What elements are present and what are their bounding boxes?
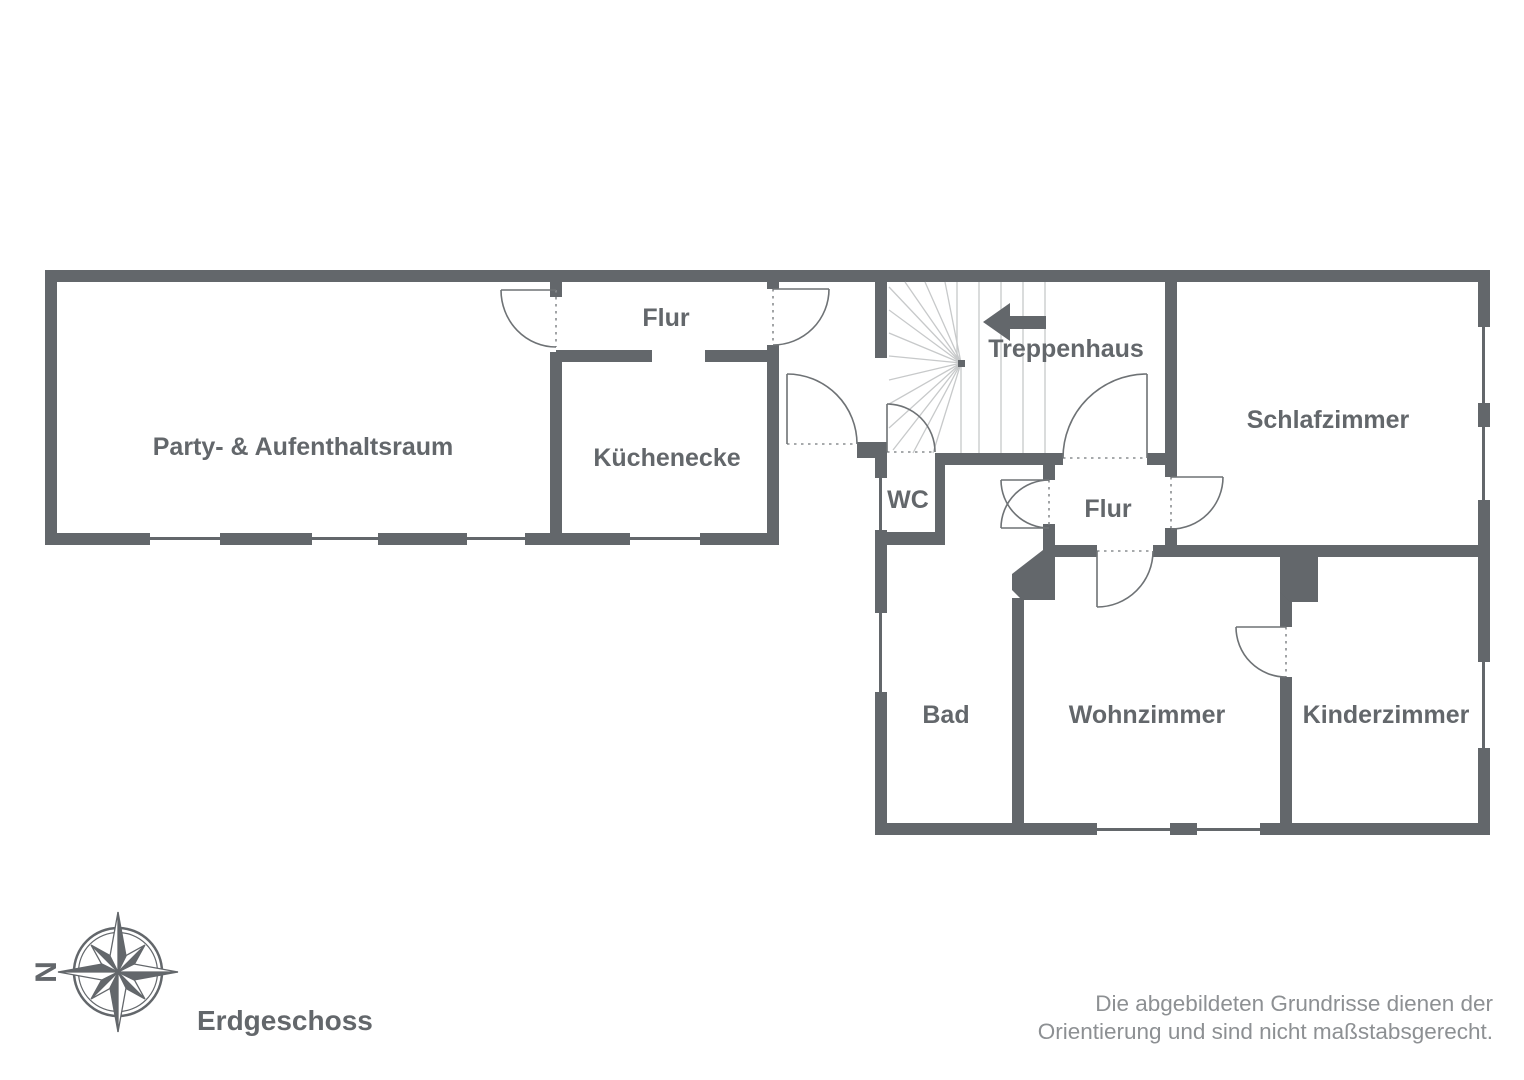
wall-segment (378, 533, 467, 545)
room-label-treppenhaus: Treppenhaus (988, 335, 1144, 363)
wall-segment (1043, 465, 1055, 480)
wall-segment (45, 270, 1490, 282)
wall-segment (875, 823, 1097, 835)
wall-segment (705, 350, 775, 362)
wall-segment (550, 352, 562, 533)
door-arc (1236, 627, 1286, 677)
wall-segment (1478, 403, 1490, 427)
window (1097, 828, 1170, 831)
door-arc (1097, 551, 1153, 607)
window (1482, 327, 1485, 403)
room-label-flur-top: Flur (642, 304, 689, 332)
door-arc (501, 290, 556, 347)
window (1482, 427, 1485, 500)
wall-segment (45, 270, 57, 545)
wall-segment (556, 350, 652, 362)
wall-segment (1165, 282, 1177, 477)
door-arc (787, 374, 857, 444)
floor-title: Erdgeschoss (197, 1005, 373, 1036)
door-arc (1171, 477, 1223, 529)
disclaimer-line-2: Orientierung und sind nicht maßstabsgere… (1038, 1019, 1493, 1044)
wall-segment (1260, 823, 1490, 835)
chimney-block (1280, 545, 1318, 602)
staircase (889, 282, 1045, 453)
room-label-flur-mitte: Flur (1084, 495, 1131, 523)
window (879, 613, 882, 692)
wall-segment (1147, 453, 1165, 465)
wall-segment (1012, 598, 1024, 823)
window (1482, 662, 1485, 748)
wall-segment (1478, 270, 1490, 327)
wall-segment (1478, 500, 1490, 662)
wall-segment (875, 692, 887, 835)
wall-segment (1165, 528, 1177, 545)
wall-segment (525, 533, 630, 545)
wall-segment (875, 282, 887, 358)
stair-winder-line (889, 356, 961, 363)
door-arc (1063, 374, 1147, 458)
stair-winder-line (889, 363, 961, 428)
floor-plan-page: Party- & Aufenthaltsraum Flur Küchenecke… (0, 0, 1524, 1080)
room-label-kinderzimmer: Kinderzimmer (1303, 701, 1470, 729)
wall-segment (857, 442, 883, 458)
wall-segment (1170, 823, 1197, 835)
window (467, 537, 525, 540)
window (150, 537, 220, 540)
wall-segment (767, 345, 779, 545)
room-label-wohnzimmer: Wohnzimmer (1069, 701, 1226, 729)
window (312, 537, 378, 540)
stair-newel-point (958, 360, 965, 367)
walls (45, 270, 1490, 835)
room-labels: Party- & Aufenthaltsraum Flur Küchenecke… (153, 304, 1470, 729)
compass-main-points (58, 912, 178, 1032)
wall-segment (220, 533, 312, 545)
room-label-kueche: Küchenecke (593, 444, 740, 472)
disclaimer: Die abgebildeten Grundrisse dienen der O… (1038, 991, 1494, 1044)
arrow-shaft (1008, 316, 1046, 329)
wall-segment (935, 453, 945, 535)
wall-segment (45, 533, 150, 545)
room-label-schlafzimmer: Schlafzimmer (1247, 406, 1410, 434)
wall-segment (875, 532, 945, 545)
wall-segment (1051, 545, 1097, 557)
compass-rose: N (30, 912, 178, 1032)
stair-winder-line (889, 287, 961, 363)
room-label-party: Party- & Aufenthaltsraum (153, 433, 454, 461)
disclaimer-line-1: Die abgebildeten Grundrisse dienen der (1095, 991, 1493, 1016)
window (879, 478, 882, 530)
window (630, 537, 700, 540)
compass-north-label: N (30, 961, 63, 983)
room-label-wc: WC (887, 486, 929, 514)
wall-segment (1280, 677, 1292, 823)
room-label-bad: Bad (922, 701, 969, 729)
door-arc (773, 289, 829, 345)
floor-plan-drawing: Party- & Aufenthaltsraum Flur Küchenecke… (0, 0, 1524, 1080)
wall-segment (945, 453, 1063, 465)
window (1197, 828, 1260, 831)
chimney-block (1012, 550, 1055, 600)
wall-segment (767, 282, 779, 289)
wall-segment (1478, 748, 1490, 835)
stair-winder-line (889, 310, 961, 363)
